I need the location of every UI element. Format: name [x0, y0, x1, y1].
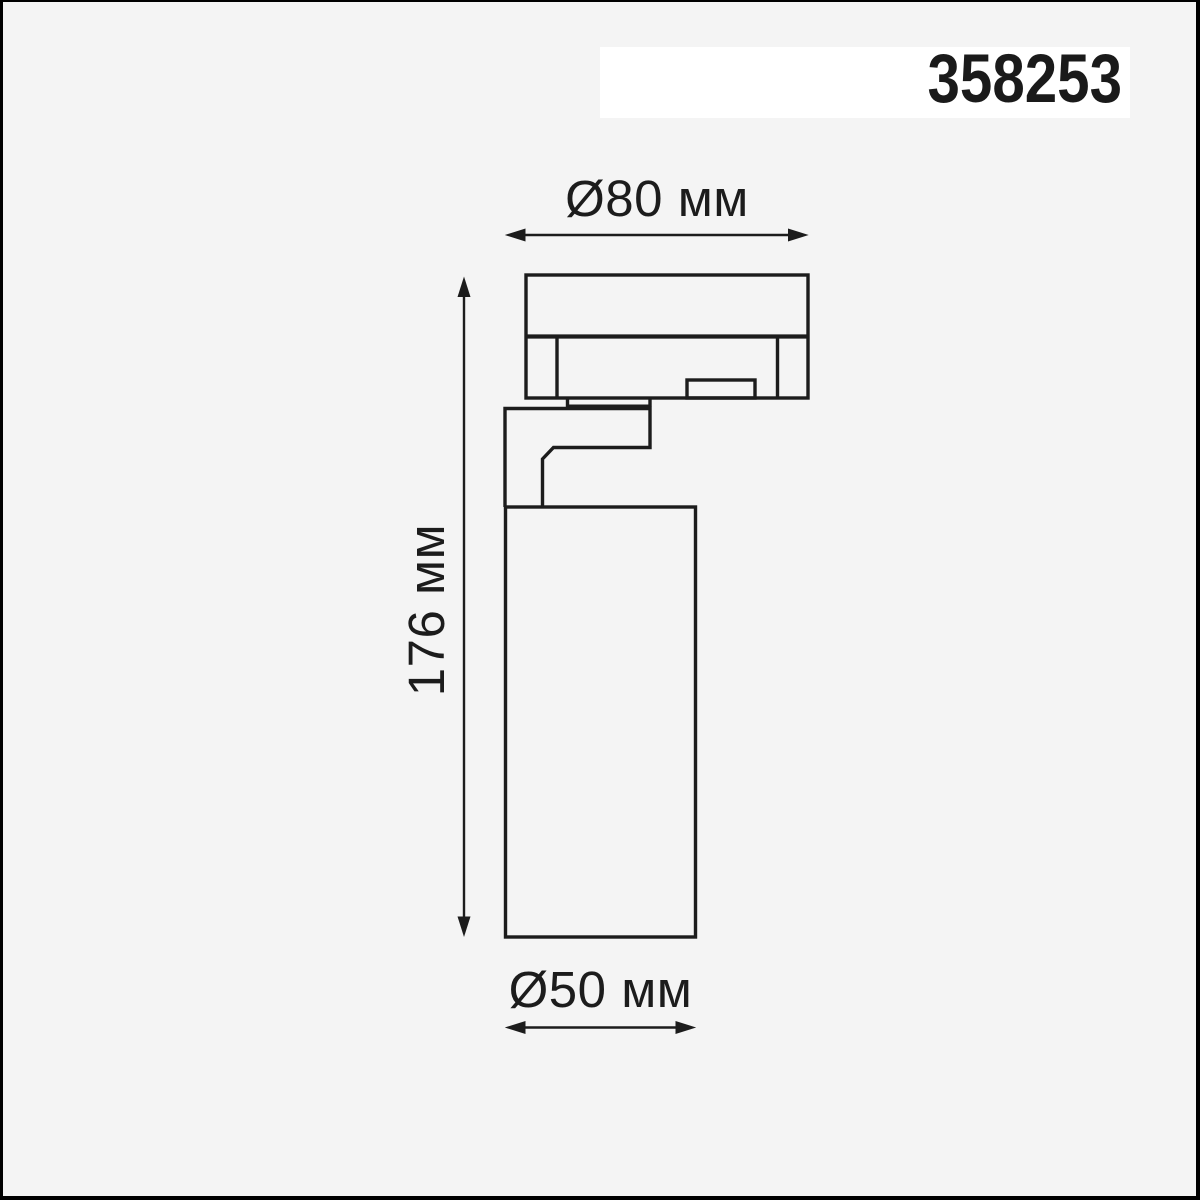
- svg-text:176 мм: 176 мм: [398, 524, 455, 696]
- svg-text:Ø80 мм: Ø80 мм: [565, 170, 749, 227]
- svg-text:358253: 358253: [927, 39, 1122, 117]
- svg-text:Ø50 мм: Ø50 мм: [509, 961, 693, 1018]
